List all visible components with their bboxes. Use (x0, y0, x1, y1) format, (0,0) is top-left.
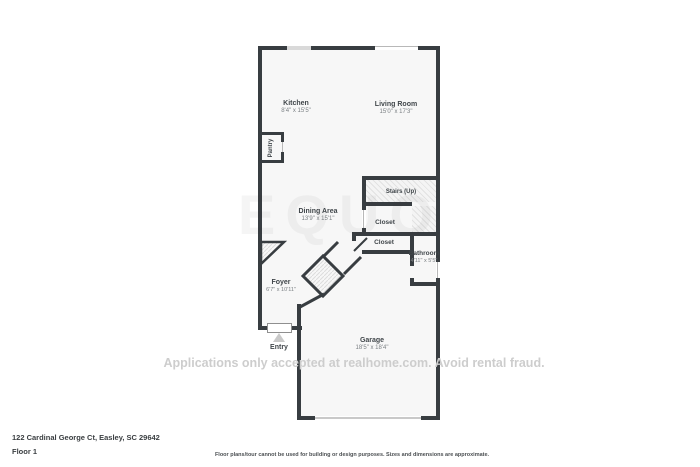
closet1-wall-bottom (352, 232, 440, 236)
bathroom-wall-bottom (410, 282, 440, 286)
pantry-wall-right-upper (281, 132, 284, 142)
garage-wall-bottom-left-stub (297, 416, 315, 420)
property-address: 122 Cardinal George Ct, Easley, SC 29642 (12, 433, 160, 442)
wall-left (258, 46, 262, 330)
stairs-hatch-strip (412, 206, 436, 232)
room-label-pantry: Pantry (268, 139, 274, 158)
closet2-wall-bottom (362, 250, 414, 254)
footer-disclaimer: Floor plans/tour cannot be used for buil… (215, 452, 489, 458)
stairs-wall-top (362, 176, 440, 180)
garage-wall-bottom-right-stub (421, 416, 440, 420)
pantry-wall-right-lower (281, 152, 284, 163)
floor-area-garage (301, 236, 436, 416)
garage-door-line (315, 417, 421, 419)
window-top-1 (287, 46, 311, 50)
floor-plan: Kitchen 8'4" x 15'5" Living Room 15'0" x… (0, 0, 700, 467)
under-stairs-wall (366, 202, 412, 206)
stairs-hatch-upper (366, 180, 436, 202)
closet2-jamb (352, 232, 356, 241)
window-right-bathroom-line (437, 262, 438, 278)
window-top-2-line (375, 46, 418, 47)
room-label-entry: Entry (270, 344, 288, 352)
bathroom-wall-left-upper (410, 232, 414, 266)
room-name: Entry (270, 344, 288, 352)
closet1-door-line (363, 210, 364, 228)
entry-door (267, 323, 292, 333)
garage-wall-left (297, 304, 301, 420)
floor-number-label: Floor 1 (12, 447, 37, 456)
pantry-door-line (282, 142, 283, 152)
entry-arrow-icon (273, 333, 285, 342)
